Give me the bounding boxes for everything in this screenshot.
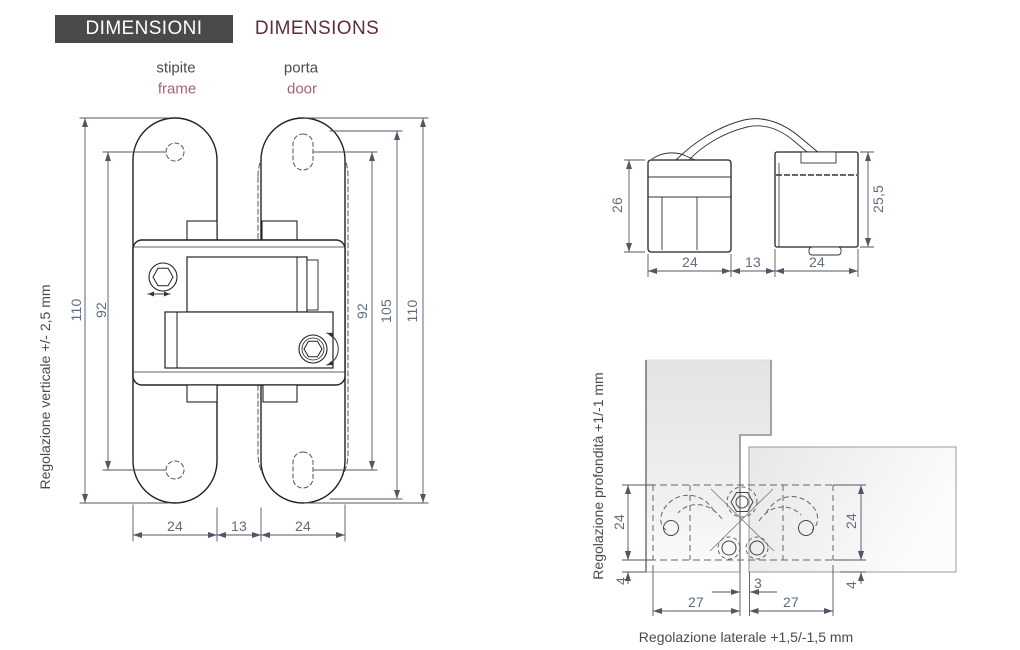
dim-front-door-24: 24 [295,518,311,534]
dim-front-frame-24: 24 [167,518,183,534]
top-view-drawing [622,360,956,616]
section-title-english: DIMENSIONS [255,18,379,40]
section-title-box: DIMENSIONI [55,15,233,43]
depth-adjust-label: Regolazione profondità +1/-1 mm [590,372,606,579]
dimensions-page: DIMENSIONI DIMENSIONS stipite frame port… [0,0,1020,650]
dim-top-right-27: 27 [783,594,799,610]
lateral-adjust-label: Regolazione laterale +1,5/-1,5 mm [639,629,853,645]
dim-top-left-24: 24 [611,514,627,530]
front-view-drawing [80,118,428,541]
dim-top-gap-3: 3 [754,575,762,591]
dim-top-left-4: 4 [613,577,629,585]
legend-door: door [287,81,317,98]
dim-side-25-5: 25,5 [870,185,886,213]
dim-side-26: 26 [609,197,625,213]
dim-top-right-24: 24 [843,513,859,529]
section-title-italian: DIMENSIONI [86,18,203,40]
door-section [749,447,956,572]
dim-front-left-92: 92 [93,302,109,318]
dim-front-gap-13: 13 [231,518,247,534]
vertical-adjust-label: Regolazione verticale +/- 2,5 mm [37,284,53,489]
dim-top-right-4: 4 [843,581,859,589]
legend-stipite: stipite [156,60,195,77]
dim-front-left-110: 110 [68,299,84,322]
dim-side-gap-13: 13 [745,254,761,270]
dim-top-left-27: 27 [688,594,704,610]
dim-side-door-24: 24 [809,254,825,270]
dim-front-right-110: 110 [404,300,420,323]
adjust-screw-lateral [299,335,327,363]
legend-frame: frame [158,81,196,98]
dim-front-right-92: 92 [354,303,370,319]
technical-drawing [0,0,1020,650]
hinge-arm-upper [187,257,307,312]
dim-side-frame-24: 24 [682,254,698,270]
dim-front-right-105: 105 [378,299,394,323]
legend-porta: porta [284,60,318,77]
